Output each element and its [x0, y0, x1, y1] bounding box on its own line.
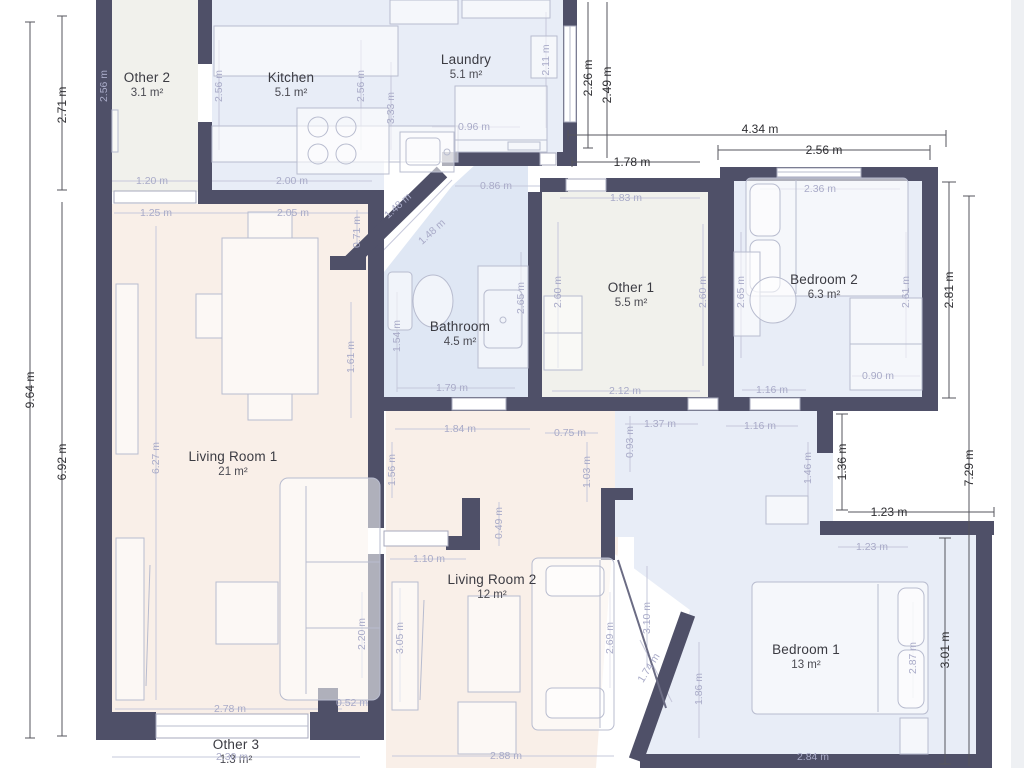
floor-other2 — [112, 0, 198, 192]
bed1-icon — [752, 582, 928, 714]
coffee-table2-icon — [468, 596, 520, 692]
sofa1-icon — [280, 478, 380, 700]
door-laundry — [540, 153, 556, 165]
door-leaf-lr1-lr2 — [384, 531, 448, 546]
dresser-icon — [766, 496, 808, 524]
door-bathroom — [452, 398, 506, 410]
door-corridor — [688, 398, 718, 410]
kitchen-sink-icon — [400, 132, 454, 172]
bathroom-sink-icon — [478, 266, 528, 368]
page-edge — [1011, 0, 1024, 768]
stove-icon — [297, 108, 389, 174]
armchair-icon — [458, 702, 516, 754]
door-other2-lr1 — [114, 191, 196, 203]
sideboard-icon — [116, 284, 138, 454]
coffee-table1-icon — [216, 582, 278, 644]
shelf-icon — [544, 296, 582, 370]
door-other1 — [566, 179, 606, 191]
door-bedroom2 — [750, 398, 800, 410]
wardrobe-icon — [850, 298, 922, 390]
floor-other3 — [112, 740, 374, 768]
floor-plan-page: Other 23.1 m²Kitchen5.1 m²Laundry5.1 m²O… — [0, 0, 1024, 768]
toilet-icon — [388, 272, 453, 330]
floor-plan-drawing — [0, 0, 1024, 768]
nightstand-icon — [900, 718, 928, 754]
radiator-icon — [112, 110, 118, 152]
sofa2-icon — [532, 558, 614, 730]
